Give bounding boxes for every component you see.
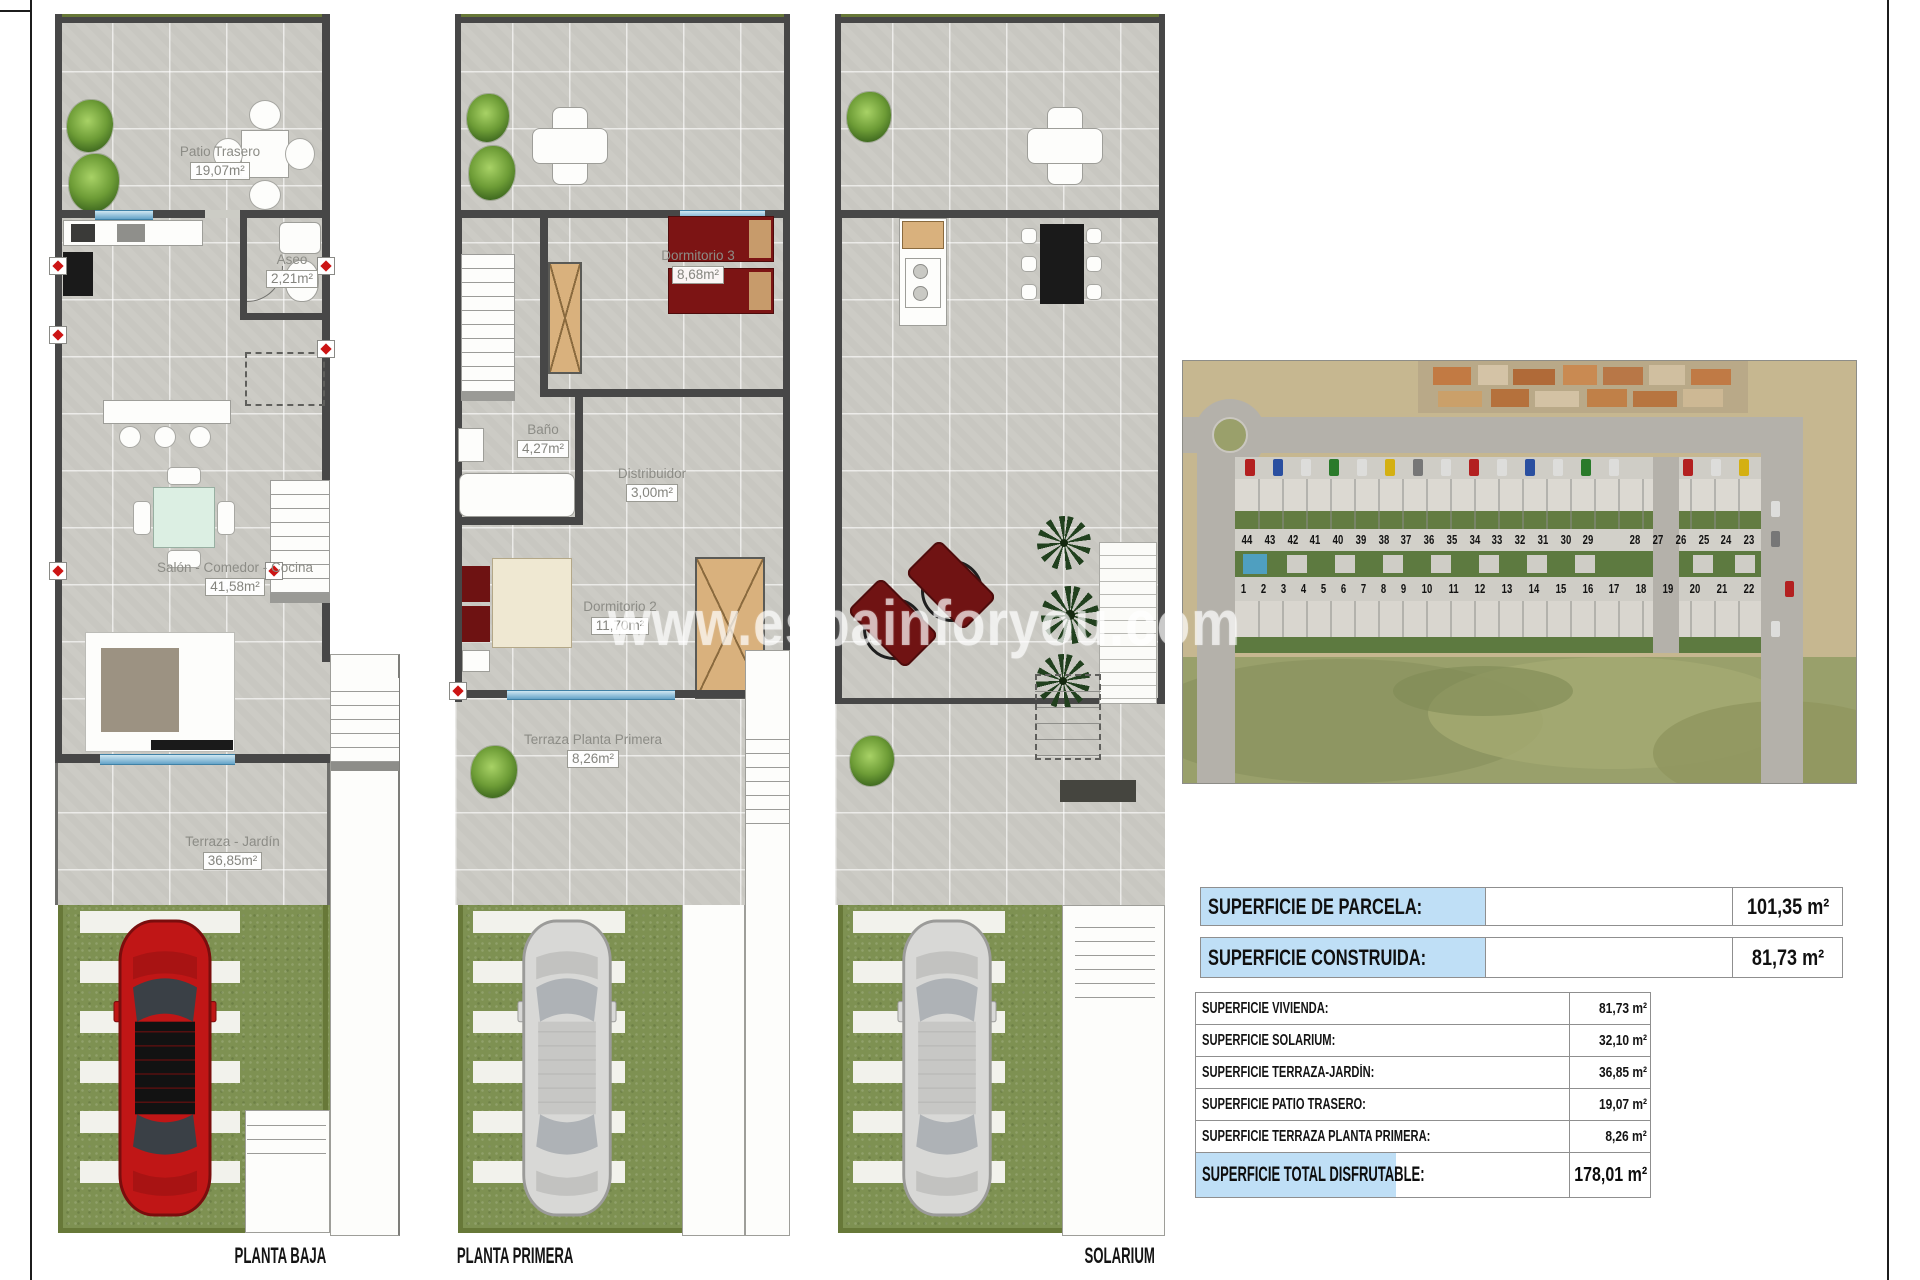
room-area: 11,70m² [591, 617, 650, 635]
plot-number: 13 [1501, 582, 1512, 596]
stair-opening [1035, 674, 1101, 760]
wall [455, 14, 461, 210]
room-area: 8,26m² [567, 750, 619, 768]
car-grey [897, 917, 997, 1219]
frame-left-line [30, 0, 32, 1280]
plot-number: 33 [1492, 533, 1503, 547]
total-row: SUPERFICIE TOTAL DISFRUTABLE: 178,01 m² [1196, 1153, 1650, 1197]
pergola-deck [1099, 542, 1157, 704]
detail-row-label: SUPERFICIE VIVIENDA: [1202, 993, 1378, 1024]
room-area: 41,58m² [205, 578, 265, 596]
total-row-value: 178,01 m² [1569, 1153, 1647, 1197]
plan-title-solarium: SOLARIUM [1020, 1243, 1220, 1269]
stool [154, 426, 176, 448]
detail-row-terraza-planta-primera: SUPERFICIE TERRAZA PLANTA PRIMERA: 8,26 … [1196, 1121, 1650, 1153]
plot-number: 3 [1281, 582, 1286, 596]
summary-value-text: 81,73 m² [1752, 945, 1824, 971]
detail-value-text: 19,07 m² [1599, 1096, 1647, 1113]
wall [540, 210, 548, 397]
detail-row-label: SUPERFICIE PATIO TRASERO: [1202, 1089, 1430, 1120]
summary-row-construida: SUPERFICIE CONSTRUIDA: 81,73 m² [1200, 937, 1843, 978]
nightstand [462, 650, 490, 672]
summary-label-text: SUPERFICIE DE PARCELA: [1208, 894, 1422, 920]
aerial-photo-graphic [1183, 361, 1856, 783]
patio-chair [249, 100, 281, 130]
bbq-cabinet [902, 221, 944, 249]
hedge-strip [458, 905, 463, 1233]
wall [835, 210, 842, 704]
dining-chair [217, 501, 235, 535]
detail-row-label: SUPERFICIE SOLARIUM: [1202, 1025, 1387, 1056]
wall [240, 210, 247, 320]
summary-row-label: SUPERFICIE DE PARCELA: [1201, 888, 1486, 925]
aerial-front-numbers: 12345678910111213141516171819202122 [1235, 577, 1761, 601]
detail-row-value: 32,10 m² [1569, 1025, 1647, 1056]
window [507, 690, 675, 700]
plot-number: 1 [1241, 582, 1246, 596]
bed-pillow [462, 606, 490, 642]
hedge-strip [58, 905, 63, 1233]
detail-row-value: 8,26 m² [1569, 1121, 1647, 1152]
terrace-edge [55, 763, 58, 905]
wall [1159, 14, 1165, 210]
room-name: Dormitorio 2 [550, 599, 690, 615]
plot-number: 20 [1690, 582, 1701, 596]
plot-number: 43 [1264, 533, 1275, 547]
plot-number: 38 [1378, 533, 1389, 547]
plan-title-planta-baja: PLANTA BAJA [180, 1243, 380, 1269]
kitchen-island [103, 400, 231, 424]
wall [1158, 210, 1165, 704]
plan-title-planta-primera: PLANTA PRIMERA [415, 1243, 615, 1269]
plan-title-text: PLANTA PRIMERA [457, 1243, 574, 1269]
room-area: 36,85m² [203, 852, 263, 870]
plot-number: 27 [1653, 533, 1664, 547]
plot-number: 18 [1636, 582, 1647, 596]
patio-table [532, 128, 608, 164]
plan-title-text: PLANTA BAJA [234, 1243, 326, 1269]
detail-row-patio-trasero: SUPERFICIE PATIO TRASERO: 19,07 m² [1196, 1089, 1650, 1121]
plot-number: 17 [1609, 582, 1620, 596]
sink [117, 224, 145, 242]
stair-void [245, 352, 325, 406]
plot-number: 14 [1528, 582, 1539, 596]
detail-row-terraza-jardin: SUPERFICIE TERRAZA-JARDÍN: 36,85 m² [1196, 1057, 1650, 1089]
bathtub [459, 473, 575, 517]
room-label-salon: Salón - Comedor - Cocina 41,58m² [150, 560, 320, 596]
step-landing [331, 762, 399, 771]
wall [240, 313, 330, 320]
plot-number: 11 [1448, 582, 1458, 596]
plot-number: 30 [1560, 533, 1571, 547]
stool [189, 426, 211, 448]
summary-label-text: SUPERFICIE CONSTRUIDA: [1208, 945, 1426, 971]
room-name: Aseo [255, 252, 329, 268]
plot-number: 39 [1355, 533, 1366, 547]
summary-row-value: 101,35 m² [1732, 888, 1843, 925]
wall [835, 210, 1165, 218]
room-area: 3,00m² [626, 484, 678, 502]
dining-chair [1086, 228, 1102, 244]
washbasin [279, 222, 321, 254]
detail-value-text: 8,26 m² [1606, 1128, 1647, 1145]
detail-label-text: SUPERFICIE TERRAZA PLANTA PRIMERA: [1202, 1128, 1430, 1146]
window [95, 210, 153, 220]
detail-label-text: SUPERFICIE VIVIENDA: [1202, 1000, 1329, 1018]
detail-row-solarium: SUPERFICIE SOLARIUM: 32,10 m² [1196, 1025, 1650, 1057]
wall [835, 17, 1165, 23]
plot-number: 28 [1630, 533, 1641, 547]
side-steps [746, 726, 789, 824]
summary-value-text: 101,35 m² [1747, 894, 1829, 920]
sink-bowl [913, 286, 928, 301]
car-grey [517, 917, 617, 1219]
room-label-dormitorio-3: Dormitorio 3 8,68m² [623, 248, 773, 284]
room-name: Baño [513, 422, 573, 438]
plot-number: 8 [1381, 582, 1386, 596]
plot-number: 22 [1744, 582, 1755, 596]
plot-number: 6 [1341, 582, 1346, 596]
room-label-patio-trasero: Patio Trasero 19,07m² [155, 144, 285, 180]
room-name: Salón - Comedor - Cocina [150, 560, 320, 576]
washbasin [458, 428, 484, 462]
plot-number: 29 [1583, 533, 1594, 547]
wall [784, 14, 790, 210]
hedge-strip [838, 905, 843, 1233]
detail-row-value: 81,73 m² [1569, 993, 1647, 1024]
room-label-bano: Baño 4,27m² [513, 422, 573, 458]
stool [119, 426, 141, 448]
plot-number: 21 [1717, 582, 1728, 596]
palm-plant [1037, 516, 1091, 570]
hedge-strip [838, 1228, 1062, 1233]
plan-title-text: SOLARIUM [1085, 1243, 1155, 1269]
pillar-marker [49, 562, 67, 580]
dining-chair [133, 501, 151, 535]
plot-number: 12 [1475, 582, 1486, 596]
pillar-marker [317, 340, 335, 358]
dark-slab [1060, 780, 1136, 802]
wall [540, 389, 790, 397]
detail-table: SUPERFICIE VIVIENDA: 81,73 m² SUPERFICIE… [1195, 992, 1651, 1198]
room-area: 2,21m² [266, 270, 318, 288]
porch-steps [247, 1112, 326, 1158]
room-area: 19,07m² [190, 162, 250, 180]
room-label-distribuidor: Distribuidor 3,00m² [597, 466, 707, 502]
frame-top-tick [0, 10, 32, 12]
total-label-text: SUPERFICIE TOTAL DISFRUTABLE: [1202, 1163, 1425, 1187]
side-walkway [682, 905, 745, 1236]
stair-landing [461, 392, 515, 401]
room-area: 4,27m² [517, 440, 569, 458]
plot-number: 31 [1538, 533, 1549, 547]
wall [55, 17, 330, 23]
summary-row-value: 81,73 m² [1732, 938, 1843, 977]
pillar-marker [449, 682, 467, 700]
window [100, 754, 235, 765]
side-steps [331, 678, 399, 762]
detail-row-value: 19,07 m² [1569, 1089, 1647, 1120]
frame-right-line [1887, 0, 1889, 1280]
room-label-aseo: Aseo 2,21m² [255, 252, 329, 288]
patio-table [1027, 128, 1103, 164]
floorplan-planta-primera: Dormitorio 3 8,68m² Baño 4,27m² Distribu… [455, 14, 790, 1236]
room-name: Distribuidor [597, 466, 707, 482]
floorplan-planta-baja: Patio Trasero 19,07m² Aseo 2,21m² [55, 14, 400, 1236]
room-name: Terraza Planta Primera [523, 732, 663, 748]
detail-label-text: SUPERFICIE TERRAZA-JARDÍN: [1202, 1064, 1374, 1082]
plot-number: 40 [1333, 533, 1344, 547]
plot-number: 25 [1698, 533, 1709, 547]
plot-number: 35 [1447, 533, 1458, 547]
patio-chair [249, 180, 281, 210]
outdoor-dining-table [1040, 224, 1084, 304]
car-red [113, 917, 217, 1219]
hedge-strip [458, 1228, 682, 1233]
detail-value-text: 32,10 m² [1599, 1032, 1647, 1049]
plot-number: 36 [1424, 533, 1435, 547]
plot-number: 23 [1744, 533, 1755, 547]
patio-chair [285, 138, 315, 170]
palm-plant [1041, 586, 1099, 644]
dining-chair [1086, 284, 1102, 300]
plot-number: 41 [1310, 533, 1321, 547]
wall [455, 17, 790, 23]
plot-number: 9 [1401, 582, 1406, 596]
aerial-photo: 4443424140393837363534333231302928272625… [1182, 360, 1857, 784]
fridge [63, 252, 93, 296]
architectural-sheet: Patio Trasero 19,07m² Aseo 2,21m² [0, 0, 1920, 1280]
dining-chair [1086, 256, 1102, 272]
plot-number: 32 [1515, 533, 1526, 547]
dining-table [153, 487, 215, 548]
detail-value-text: 81,73 m² [1599, 1000, 1647, 1017]
total-value-text: 178,01 m² [1574, 1164, 1647, 1187]
dining-chair [167, 467, 201, 485]
plot-number: 7 [1361, 582, 1366, 596]
pillar-marker [49, 326, 67, 344]
room-name: Dormitorio 3 [623, 248, 773, 264]
plot-number: 5 [1321, 582, 1326, 596]
summary-row-parcela: SUPERFICIE DE PARCELA: 101,35 m² [1200, 887, 1843, 926]
dining-chair [1021, 256, 1037, 272]
detail-label-text: SUPERFICIE SOLARIUM: [1202, 1032, 1335, 1050]
detail-label-text: SUPERFICIE PATIO TRASERO: [1202, 1096, 1366, 1114]
wall [575, 397, 583, 525]
detail-value-text: 36,85 m² [1599, 1064, 1647, 1081]
side-steps [1075, 914, 1155, 1000]
plot-number: 37 [1401, 533, 1412, 547]
room-label-terraza-planta-primera: Terraza Planta Primera 8,26m² [523, 732, 663, 768]
staircase [461, 254, 515, 392]
plot-number: 24 [1721, 533, 1732, 547]
plot-number: 16 [1582, 582, 1593, 596]
plot-number: 19 [1663, 582, 1674, 596]
plot-number: 42 [1287, 533, 1298, 547]
tv-unit [151, 740, 233, 750]
plot-number: 2 [1261, 582, 1266, 596]
plot-number: 10 [1421, 582, 1432, 596]
room-name: Patio Trasero [155, 144, 285, 160]
detail-row-value: 36,85 m² [1569, 1057, 1647, 1088]
room-name: Terraza - Jardín [150, 834, 315, 850]
plot-number: 44 [1242, 533, 1253, 547]
wall [55, 14, 62, 762]
detail-row-label: SUPERFICIE TERRAZA-JARDÍN: [1202, 1057, 1441, 1088]
dining-chair [1021, 228, 1037, 244]
room-label-terraza-jardin: Terraza - Jardín 36,85m² [150, 834, 315, 870]
bed-pillow [462, 566, 490, 602]
rug [101, 648, 179, 732]
floorplan-solarium [835, 14, 1165, 1236]
plot-number: 4 [1301, 582, 1306, 596]
aerial-back-numbers: 4443424140393837363534333231302928272625… [1235, 529, 1761, 551]
room-area: 8,68m² [672, 266, 724, 284]
detail-row-label: SUPERFICIE TERRAZA PLANTA PRIMERA: [1202, 1121, 1519, 1152]
cooktop [71, 224, 95, 242]
pillar-marker [49, 257, 67, 275]
plot-number: 26 [1675, 533, 1686, 547]
wardrobe [548, 262, 582, 374]
total-row-label: SUPERFICIE TOTAL DISFRUTABLE: [1196, 1153, 1396, 1197]
plot-number: 15 [1555, 582, 1566, 596]
room-label-dormitorio-2: Dormitorio 2 11,70m² [550, 599, 690, 635]
sink-bowl [913, 264, 928, 279]
plot-number: 34 [1469, 533, 1480, 547]
detail-row-vivienda: SUPERFICIE VIVIENDA: 81,73 m² [1196, 993, 1650, 1025]
summary-row-label: SUPERFICIE CONSTRUIDA: [1201, 938, 1486, 977]
wall [783, 210, 790, 702]
dining-chair [1021, 284, 1037, 300]
wall [835, 14, 841, 210]
wall [455, 517, 583, 525]
